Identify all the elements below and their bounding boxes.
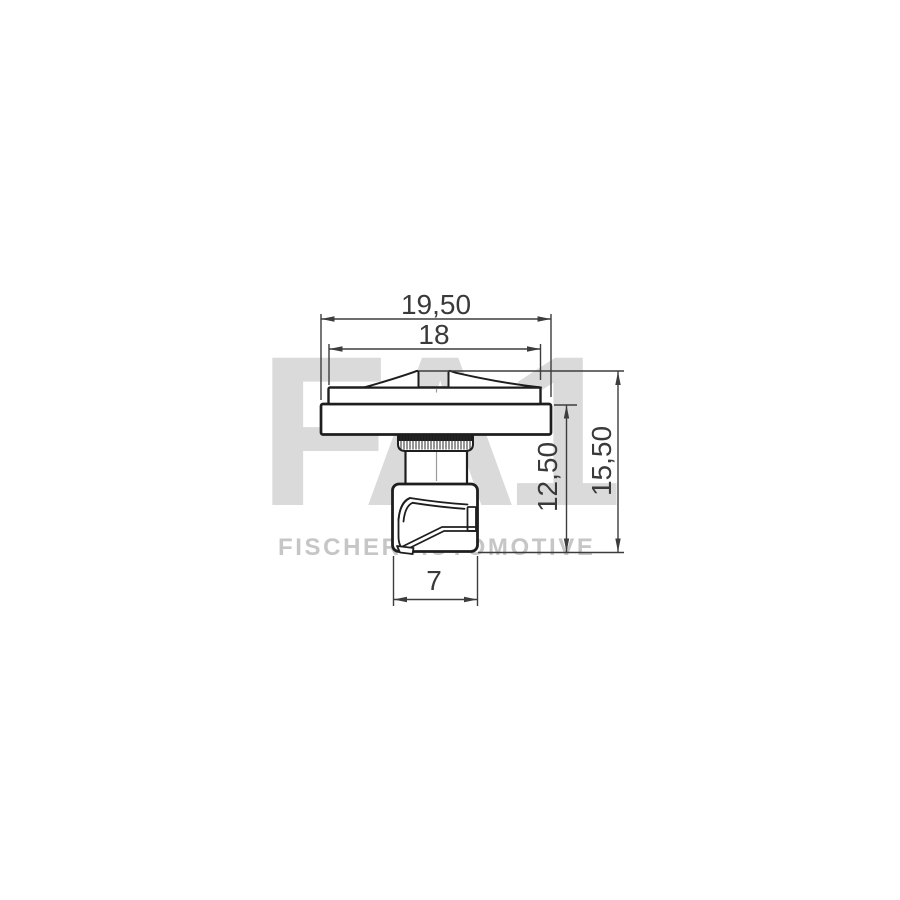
part-cap — [329, 388, 541, 405]
head-wing-right — [449, 371, 542, 388]
clip-bottom-tab — [397, 546, 414, 554]
dim-label-outer-width: 19,50 — [401, 289, 471, 320]
dim-foot-width: 7 — [394, 556, 478, 606]
part-drawing-svg: 19,50 18 12,50 15,50 — [0, 0, 900, 900]
head-wing-left — [364, 371, 419, 388]
dim-label-foot-width: 7 — [426, 565, 442, 596]
dim-label-total-height: 15,50 — [586, 426, 617, 496]
dim-label-cap-width: 18 — [418, 319, 449, 350]
technical-drawing-canvas: FA1 FISCHER AUTOMOTIVE — [0, 0, 900, 900]
part-flange — [321, 404, 551, 435]
dim-cap-width: 18 — [329, 319, 541, 385]
part-foot-block — [393, 484, 478, 552]
dim-label-body-height: 12,50 — [532, 442, 563, 512]
